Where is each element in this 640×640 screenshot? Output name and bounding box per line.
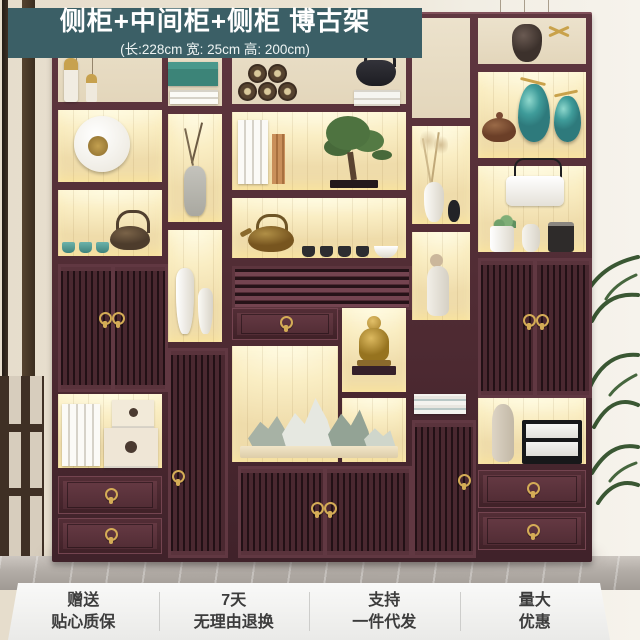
white-box-stack: [354, 90, 400, 106]
drawer-pull: [105, 488, 118, 501]
dark-pot: [512, 24, 542, 62]
teacup: [320, 246, 333, 257]
gift-box-teal: [168, 62, 218, 86]
service-bar: 赠送 贴心质保 7天 无理由退换 支持 一件代发 量大 优惠: [8, 583, 610, 640]
door-ring-handle: [172, 470, 185, 483]
service-item-dropship: 支持 一件代发: [309, 583, 460, 640]
white-books: [238, 120, 268, 184]
drawer-pull: [105, 528, 118, 541]
right-cabinet-doors: [478, 258, 592, 398]
white-basket: [506, 176, 564, 206]
white-books: [170, 90, 218, 104]
teacup: [62, 242, 75, 253]
black-candle-jar: [548, 222, 574, 252]
succulent-pot: [490, 226, 514, 252]
book-stack: [414, 394, 466, 414]
service-line: 7天: [221, 590, 246, 612]
service-line: 量大: [519, 590, 551, 612]
white-box-stack: [526, 442, 578, 456]
left-cabinet-doors: [58, 264, 168, 392]
teacup: [79, 242, 92, 253]
wood-books: [272, 134, 285, 184]
white-jar: [522, 224, 540, 252]
service-item-returns: 7天 无理由退换: [159, 583, 310, 640]
scroll-roll: [238, 82, 257, 101]
lattice-screen: [0, 376, 44, 562]
service-line: 支持: [368, 590, 400, 612]
white-vase: [424, 182, 444, 222]
narrow-cabinet-door2: [412, 420, 476, 558]
drawer-pull: [527, 524, 540, 537]
product-title: 侧柜+中间柜+侧柜 博古架: [60, 8, 371, 35]
black-kettle: [356, 60, 396, 86]
pampas-plume: [434, 134, 448, 156]
door-ring-handle: [458, 474, 471, 487]
scroll-roll: [268, 64, 287, 83]
teacup: [96, 242, 109, 253]
teal-jar: [554, 96, 581, 142]
teal-jar: [518, 84, 550, 142]
title-banner: 侧柜+中间柜+侧柜 博古架 (长:228cm 宽: 25cm 高: 200cm): [8, 8, 422, 58]
teacup: [356, 246, 369, 257]
bonsai-pot: [330, 180, 378, 188]
door-ring-handle: [536, 314, 549, 327]
service-line: 贴心质保: [51, 612, 115, 634]
rock-tray: [240, 446, 398, 458]
clay-teapot: [482, 118, 516, 142]
white-books: [62, 404, 100, 466]
teapot-knob: [496, 112, 503, 119]
door-ring-handle: [324, 502, 337, 515]
box-clasp: [125, 441, 137, 453]
box-clasp: [129, 408, 138, 417]
disc-medallion: [88, 136, 108, 156]
scroll-roll: [248, 64, 267, 83]
bonsai-canopy: [326, 116, 370, 150]
service-item-bulk-discount: 量大 优惠: [460, 583, 611, 640]
stone-figurine: [492, 404, 514, 462]
black-vase: [448, 200, 460, 222]
service-line: 优惠: [519, 612, 551, 634]
gold-vase: [86, 74, 97, 102]
service-line: 无理由退换: [194, 612, 274, 634]
louver-panel: [232, 266, 412, 310]
white-vase: [198, 288, 213, 334]
service-item-warranty: 赠送 贴心质保: [8, 583, 159, 640]
door-ring-handle: [523, 314, 536, 327]
service-line: 一件代发: [352, 612, 416, 634]
glass-vase: [184, 166, 206, 216]
door-ring-handle: [99, 312, 112, 325]
buddha-base: [352, 366, 396, 375]
door-ring-handle: [112, 312, 125, 325]
white-vase: [176, 268, 194, 334]
buddha-body: [359, 328, 389, 362]
drawer-pull: [280, 316, 293, 329]
brass-teapot: [248, 226, 294, 252]
white-box-stack: [526, 424, 578, 438]
monk-figurine-body: [427, 266, 449, 316]
gold-vase: [64, 58, 78, 102]
product-image: 侧柜+中间柜+侧柜 博古架 (长:228cm 宽: 25cm 高: 200cm)…: [0, 0, 640, 640]
teacup: [338, 246, 351, 257]
scroll-roll: [258, 82, 277, 101]
service-line: 赠送: [67, 590, 99, 612]
teacup: [302, 246, 315, 257]
door-ring-handle: [311, 502, 324, 515]
drawer-pull: [527, 482, 540, 495]
product-dimensions: (长:228cm 宽: 25cm 高: 200cm): [120, 38, 310, 58]
scroll-roll: [278, 82, 297, 101]
teapot: [110, 226, 150, 250]
narrow-cabinet-door: [168, 348, 228, 558]
